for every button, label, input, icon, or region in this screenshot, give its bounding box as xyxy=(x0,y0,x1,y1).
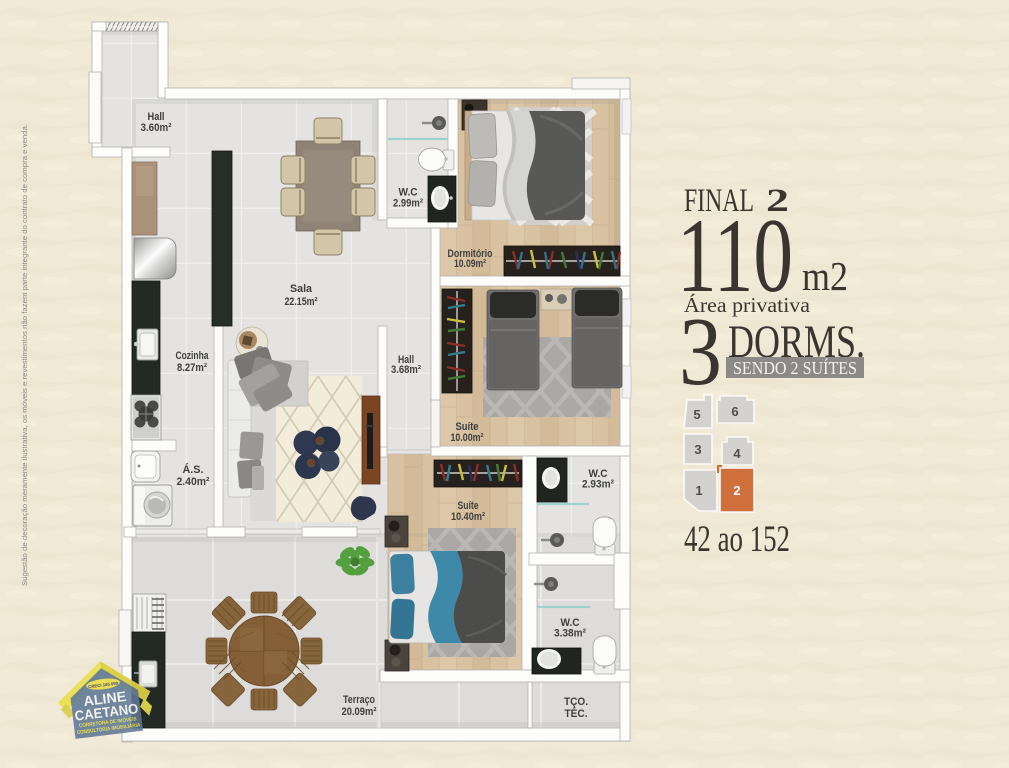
svg-text:10.00m²: 10.00m² xyxy=(451,432,484,444)
svg-text:Sala: Sala xyxy=(290,283,313,295)
svg-text:22.15m²: 22.15m² xyxy=(285,296,318,308)
svg-text:3.60m²: 3.60m² xyxy=(141,122,172,134)
svg-text:2.40m²: 2.40m² xyxy=(177,476,210,488)
svg-text:5: 5 xyxy=(693,407,700,422)
svg-text:4: 4 xyxy=(733,446,741,461)
svg-text:SENDO 2 SUÍTES: SENDO 2 SUÍTES xyxy=(733,358,857,378)
svg-text:2.99m²: 2.99m² xyxy=(393,198,423,210)
svg-text:Sugestão de decoração merament: Sugestão de decoração meramente ilustrat… xyxy=(20,124,29,586)
svg-text:8.27m²: 8.27m² xyxy=(177,362,207,374)
svg-text:3.68m²: 3.68m² xyxy=(391,364,421,376)
svg-text:3.38m²: 3.38m² xyxy=(554,628,586,640)
svg-text:10.40m²: 10.40m² xyxy=(451,511,485,523)
svg-text:3: 3 xyxy=(679,298,722,406)
svg-text:10.09m²: 10.09m² xyxy=(454,258,486,270)
svg-text:2: 2 xyxy=(733,483,740,498)
svg-text:TÇO.: TÇO. xyxy=(564,696,588,708)
svg-text:Á.S.: Á.S. xyxy=(183,463,204,476)
svg-text:Cozinha: Cozinha xyxy=(176,350,210,362)
svg-text:2.93m²: 2.93m² xyxy=(582,479,614,491)
svg-text:1: 1 xyxy=(695,483,702,498)
svg-text:42 ao 152: 42 ao 152 xyxy=(684,519,790,560)
svg-text:20.09m²: 20.09m² xyxy=(342,706,377,718)
svg-text:3: 3 xyxy=(694,442,701,457)
svg-text:6: 6 xyxy=(731,404,738,419)
svg-text:TÉC.: TÉC. xyxy=(565,707,588,720)
svg-text:Terraço: Terraço xyxy=(343,694,375,706)
